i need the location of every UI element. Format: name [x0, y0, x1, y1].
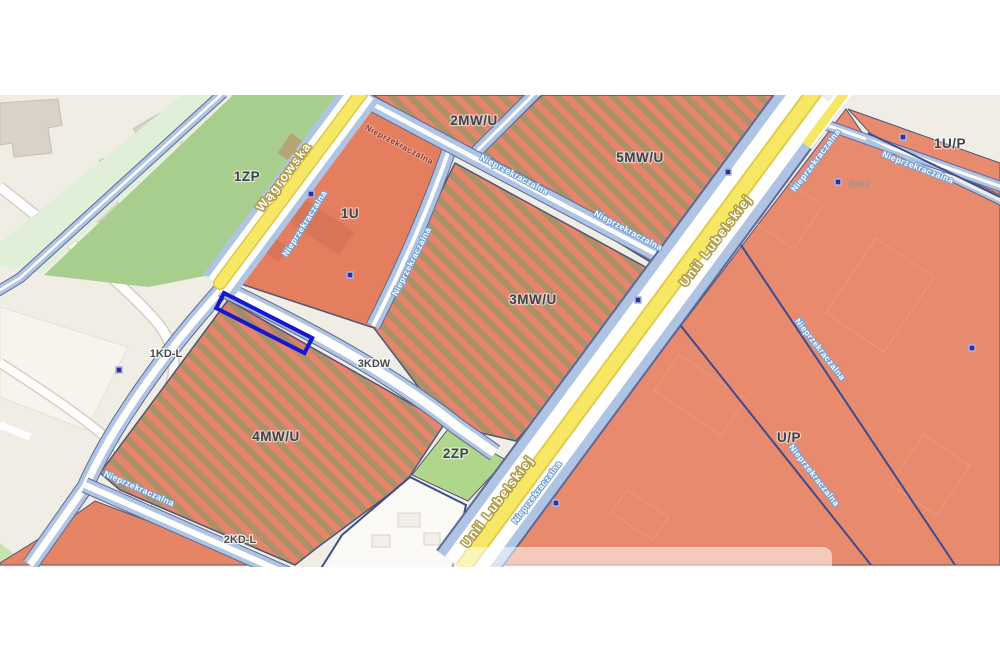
zone-label-2zp: 2ZP	[443, 446, 469, 461]
zone-label-4mwu: 4MW/U	[252, 429, 300, 444]
zone-label-5mwu: 5MW/U	[616, 150, 664, 165]
zone-label-2mwu: 2MW/U	[450, 113, 498, 128]
map-canvas[interactable]: 1ZP 2MW/U 5MW/U 1U 3MW/U 4MW/U 2ZP U/P 1…	[0, 95, 1000, 567]
zone-label-1u: 1U	[341, 206, 359, 221]
zone-label-up: U/P	[777, 430, 801, 445]
road-label-3kdw: 3KDW	[358, 358, 391, 370]
bottom-overlay-panel	[452, 547, 832, 567]
zone-label-1up: 1U/P	[934, 136, 966, 151]
road-label-1kdl: 1KD-L	[150, 348, 183, 360]
screenshot-page: { "map": { "zones": { "z1zp": "1ZP", "z2…	[0, 0, 1000, 667]
zone-label-3mwu: 3MW/U	[509, 292, 557, 307]
zoning-map: 1ZP 2MW/U 5MW/U 1U 3MW/U 4MW/U 2ZP U/P 1…	[0, 95, 1000, 567]
place-label-dwor: dwor	[848, 178, 871, 190]
zone-label-1zp: 1ZP	[234, 169, 260, 184]
road-label-2kdl: 2KD-L	[224, 534, 257, 546]
